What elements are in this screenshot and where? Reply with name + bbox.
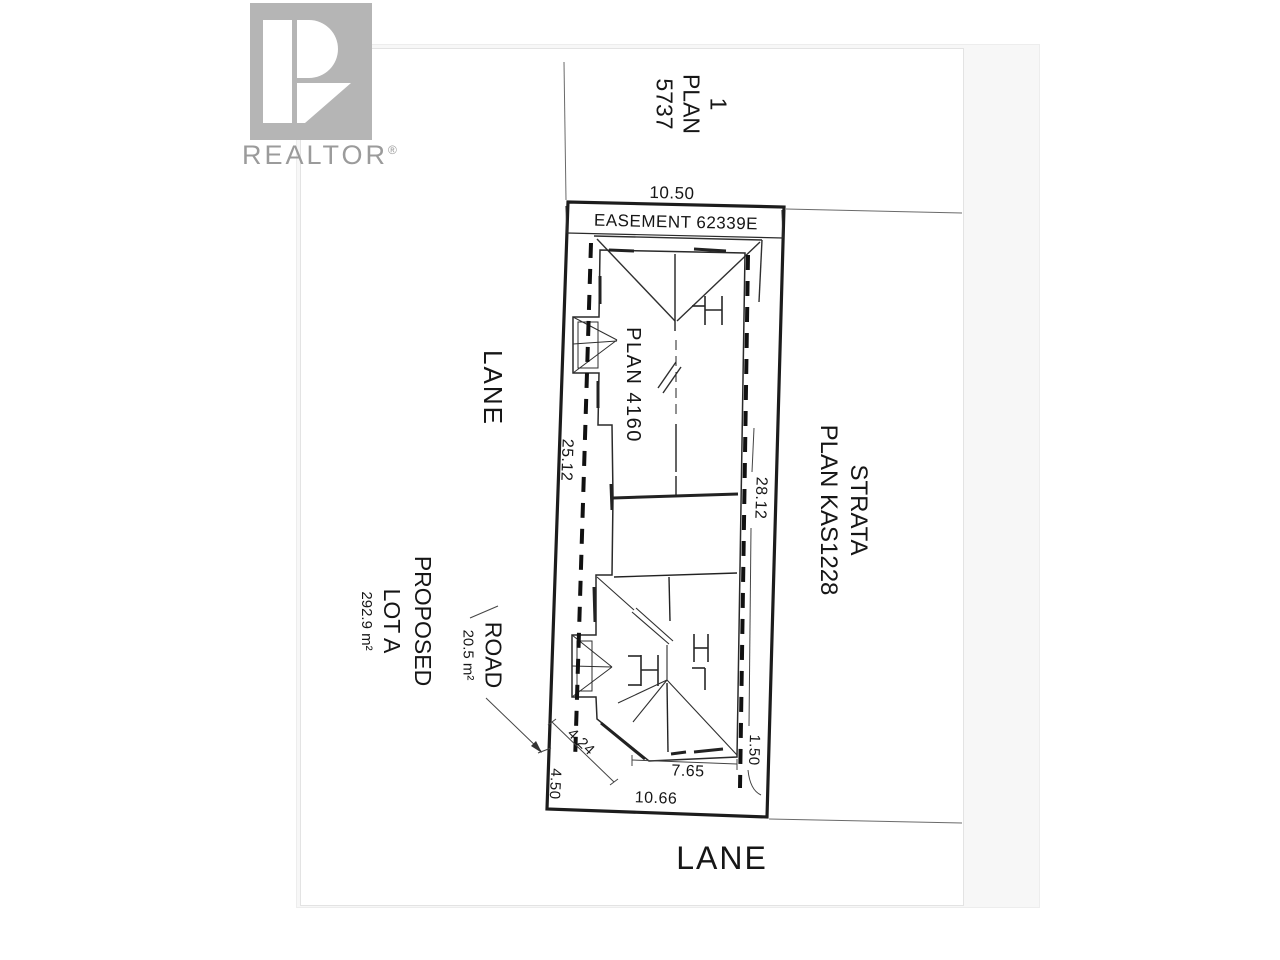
proposed-lot-label: PROPOSED LOT A 292.9 m² (356, 556, 438, 686)
realtor-wordmark-text: REALTOR (242, 140, 388, 170)
neighbor-plan-number: 5737 (651, 74, 678, 134)
realtor-wordmark: REALTOR® (242, 140, 397, 171)
dim-east: 28.12 (751, 476, 768, 519)
plot-plan-drawing (0, 0, 1280, 960)
realtor-logo-icon (250, 3, 372, 140)
survey-plan-page: REALTOR® 1 PLAN 5737 STRATA PLAN KAS1228… (0, 0, 1280, 960)
lane-left-label: LANE (480, 350, 506, 426)
road-label: ROAD 20.5 m² (458, 622, 507, 688)
registered-symbol: ® (388, 143, 397, 157)
stair-hatch (658, 362, 681, 393)
dim-east-lower: 1.50 (746, 734, 762, 766)
roof-outline (594, 236, 762, 321)
wall-cluster-south-b (692, 634, 708, 690)
neighbor-lot-number: 1 (705, 74, 732, 134)
lot-a-area: 292.9 m² (356, 556, 376, 686)
window-segments (594, 249, 726, 759)
dim-top: 10.50 (649, 184, 694, 202)
strata-plan-label: STRATA PLAN KAS1228 (813, 425, 873, 596)
neighbor-plan-word: PLAN (678, 74, 705, 134)
dim-building-bottom: 7.65 (671, 763, 705, 780)
bay-window-north (573, 317, 617, 373)
road-word: ROAD (478, 622, 508, 688)
building-plan-label: PLAN 4160 (623, 327, 643, 443)
strata-plan-number: PLAN KAS1228 (813, 425, 843, 596)
road-area: 20.5 m² (458, 622, 478, 688)
dim-south: 10.66 (634, 790, 677, 807)
neighbor-lot-top-label: 1 PLAN 5737 (651, 74, 732, 134)
dim-west: 25.12 (557, 438, 574, 481)
dim-west-lower: 4.50 (547, 768, 564, 800)
wall-cluster-north (692, 296, 722, 325)
strata-word: STRATA (843, 425, 873, 596)
easement-label: EASEMENT 62339E (594, 212, 758, 233)
lot-a-word: LOT A (376, 556, 407, 686)
proposed-word: PROPOSED (407, 556, 438, 686)
lane-bottom-label: LANE (676, 842, 768, 874)
wall-cluster-south-a (628, 655, 658, 686)
